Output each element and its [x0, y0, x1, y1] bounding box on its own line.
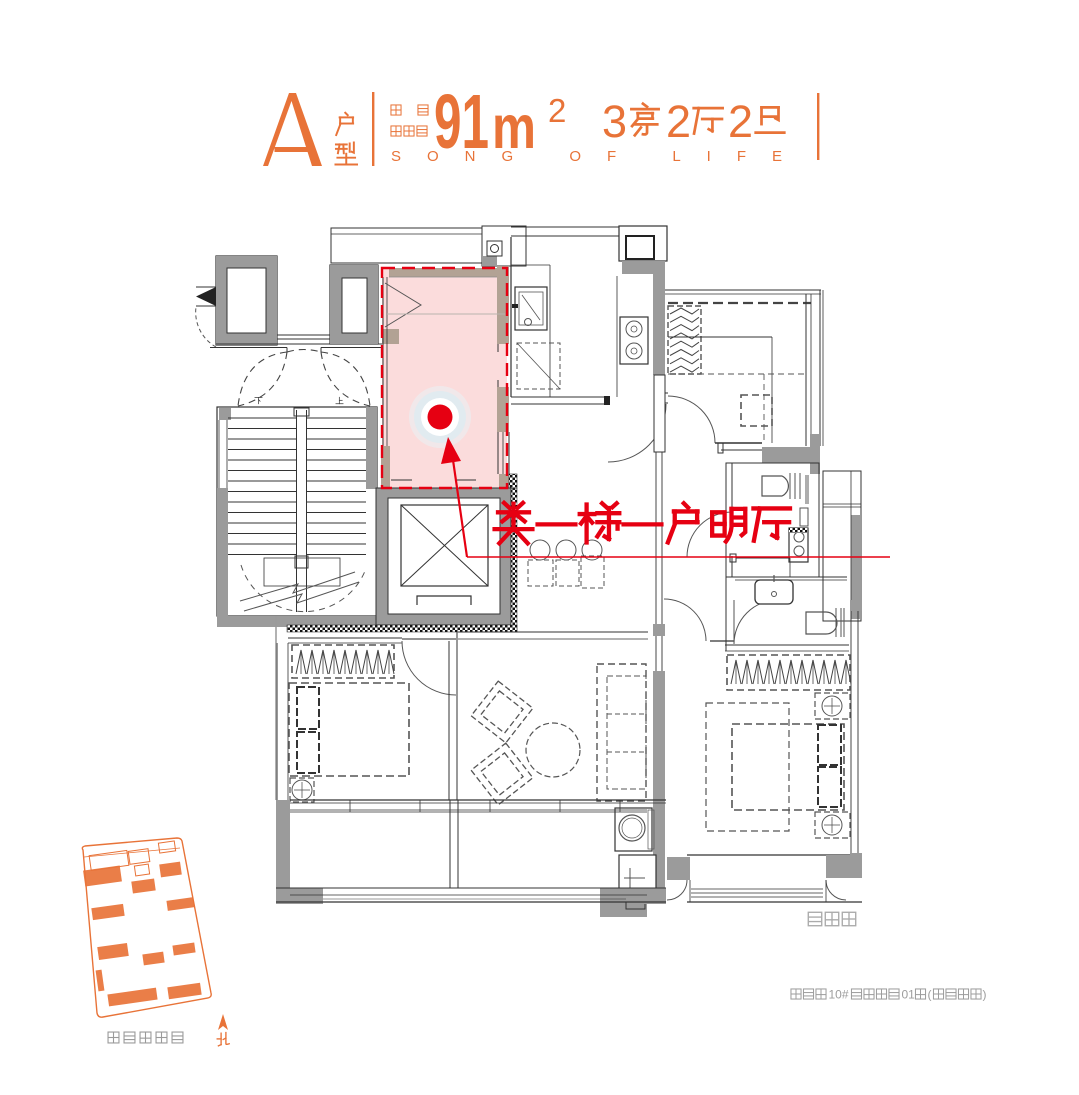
svg-text:10#: 10# — [829, 988, 849, 1002]
svg-text:(: ( — [928, 988, 932, 1002]
svg-text:2: 2 — [728, 96, 753, 147]
svg-text:2: 2 — [666, 96, 691, 147]
svg-text:01: 01 — [902, 988, 916, 1002]
svg-text:3: 3 — [602, 96, 627, 147]
svg-text:): ) — [983, 988, 987, 1002]
svg-text:2: 2 — [548, 92, 566, 129]
svg-text:SONG OF LIFE: SONG OF LIFE — [391, 148, 808, 165]
